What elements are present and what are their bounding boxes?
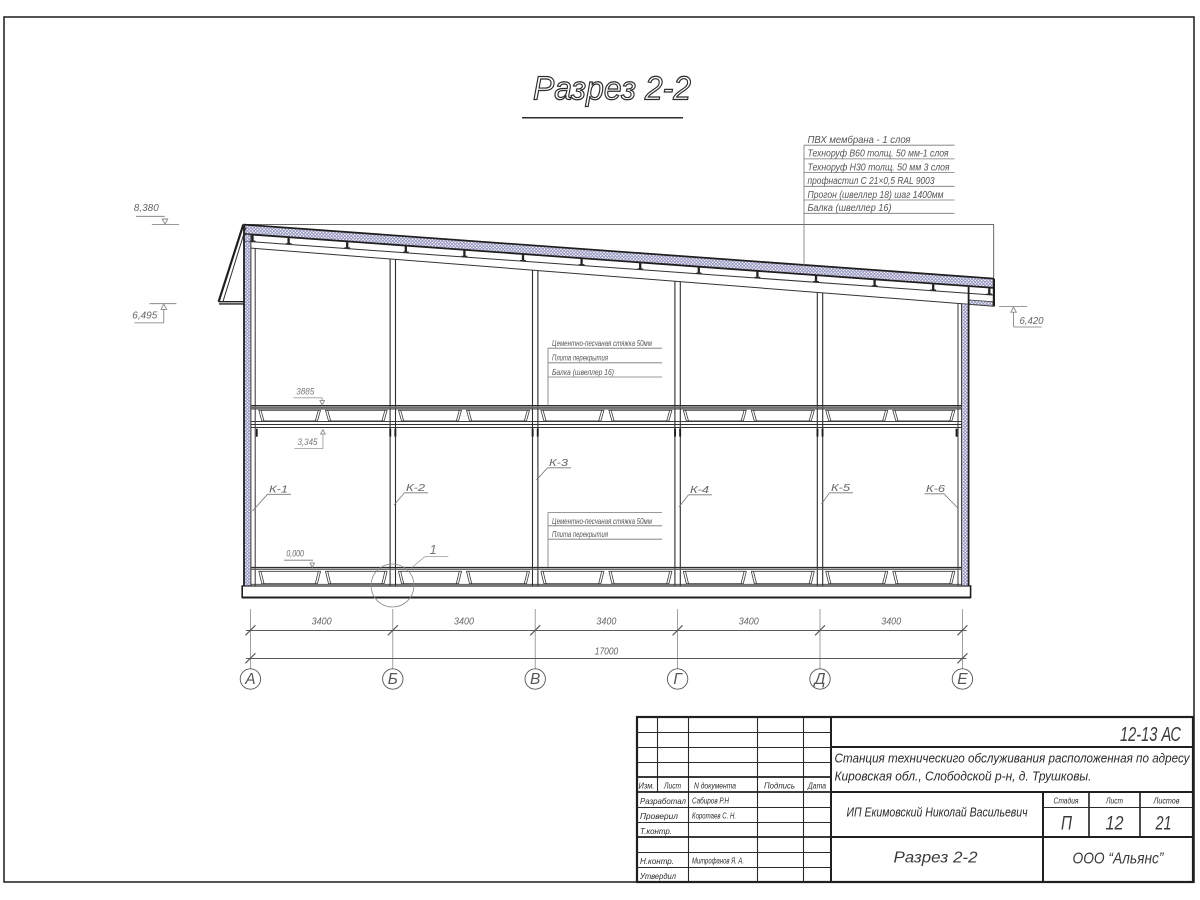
svg-text:N документа: N документа (694, 782, 736, 791)
svg-text:Балка (швеллер 16): Балка (швеллер 16) (808, 203, 892, 214)
svg-text:ООО “Альянс”: ООО “Альянс” (1073, 851, 1165, 868)
svg-text:К-5: К-5 (831, 483, 851, 494)
svg-text:21: 21 (1155, 814, 1172, 835)
svg-text:ПВХ мембрана - 1 слоя: ПВХ мембрана - 1 слоя (808, 134, 912, 146)
svg-text:К-4: К-4 (690, 485, 710, 496)
svg-text:Дата: Дата (807, 782, 826, 791)
svg-text:12: 12 (1106, 814, 1124, 835)
svg-text:17000: 17000 (595, 646, 619, 657)
svg-text:Стадия: Стадия (1054, 795, 1079, 805)
svg-text:0,000: 0,000 (286, 548, 304, 558)
svg-text:6,495: 6,495 (132, 309, 157, 321)
svg-text:Б: Б (388, 671, 398, 688)
svg-text:Разрез 2-2: Разрез 2-2 (533, 70, 691, 107)
svg-text:Техноруф Н30 толщ. 50 мм 3 сло: Техноруф Н30 толщ. 50 мм 3 слоя (808, 161, 951, 173)
svg-text:Коротаев С. Н.: Коротаев С. Н. (692, 811, 736, 820)
svg-text:8,380: 8,380 (134, 202, 159, 214)
svg-text:Разработал: Разработал (640, 796, 686, 806)
svg-text:Н.контр.: Н.контр. (640, 856, 674, 866)
svg-text:профнастил С 21×0,5 RAL 9003: профнастил С 21×0,5 RAL 9003 (808, 175, 935, 187)
svg-text:Станция техническиго обслужива: Станция техническиго обслуживания распол… (835, 751, 1191, 766)
svg-text:В: В (530, 671, 540, 688)
svg-text:К-6: К-6 (926, 484, 946, 495)
svg-text:3,345: 3,345 (298, 437, 319, 447)
svg-text:Д: Д (813, 671, 826, 688)
svg-text:Лист: Лист (663, 782, 681, 791)
svg-text:К-2: К-2 (406, 483, 426, 494)
svg-text:3400: 3400 (739, 617, 759, 628)
svg-text:12-13 АС: 12-13 АС (1120, 724, 1181, 746)
svg-text:Балка (швеллер 16): Балка (швеллер 16) (552, 368, 614, 377)
svg-text:3400: 3400 (312, 617, 332, 628)
svg-text:Е: Е (957, 671, 968, 688)
svg-text:1: 1 (430, 542, 437, 557)
svg-text:К-3: К-3 (549, 458, 569, 469)
svg-text:3400: 3400 (596, 617, 616, 628)
svg-text:Т.контр.: Т.контр. (640, 826, 672, 836)
svg-text:Лист: Лист (1105, 795, 1123, 805)
svg-text:Митрофанов Я. А.: Митрофанов Я. А. (692, 856, 744, 865)
svg-text:Кировская обл., Слободской р-н: Кировская обл., Слободской р-н, д. Трушк… (835, 769, 1092, 784)
svg-text:Плита перекрытия: Плита перекрытия (552, 354, 609, 363)
svg-text:6,420: 6,420 (1020, 315, 1044, 327)
svg-text:3400: 3400 (454, 617, 474, 628)
svg-text:Проверил: Проверил (640, 811, 678, 821)
svg-text:Разрез 2-2: Разрез 2-2 (894, 850, 978, 867)
svg-text:Подпись: Подпись (764, 782, 795, 791)
svg-text:П: П (1061, 814, 1072, 835)
svg-text:Сабиров Р.Н: Сабиров Р.Н (692, 796, 729, 805)
svg-text:Плита перекрытия: Плита перекрытия (552, 530, 609, 539)
svg-text:Изм.: Изм. (639, 782, 655, 791)
svg-text:Прогон (швеллер 18) шаг 1400мм: Прогон (швеллер 18) шаг 1400мм (808, 190, 944, 201)
svg-text:3885: 3885 (296, 387, 315, 398)
svg-text:Утвердил: Утвердил (639, 871, 676, 881)
svg-text:А: А (244, 671, 255, 688)
svg-text:К-1: К-1 (269, 485, 288, 496)
svg-text:Листов: Листов (1153, 795, 1180, 805)
svg-text:Техноруф В60 толщ. 50 мм-1 сло: Техноруф В60 толщ. 50 мм-1 слоя (808, 148, 950, 160)
svg-text:ИП Екимовский Николай Васильев: ИП Екимовский Николай Васильевич (847, 806, 1028, 820)
svg-text:Цементно-песчаная стяжка 50мм: Цементно-песчаная стяжка 50мм (552, 517, 653, 526)
svg-text:3400: 3400 (881, 617, 901, 628)
svg-text:Цементно-песчаная стяжка 50мм: Цементно-песчаная стяжка 50мм (552, 339, 653, 348)
